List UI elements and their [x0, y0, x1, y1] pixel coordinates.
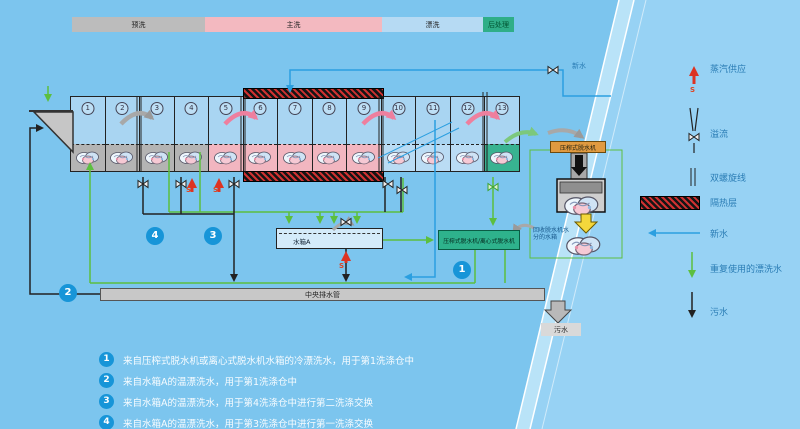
compartment-3: 3 [140, 97, 175, 171]
steam-s-label: S [213, 186, 218, 194]
legend-overflow: 溢流 [710, 127, 728, 140]
compartment-number: 12 [461, 102, 474, 115]
annotation-row-2: 2 来自水箱A的温漂洗水，用于第1洗涤仓中 [99, 373, 297, 388]
valve-icon [383, 181, 393, 188]
compartment-2: 2 [106, 97, 141, 171]
laundry-icon [145, 150, 169, 166]
compartment-drum [347, 144, 381, 171]
phase-prewash: 预洗 [72, 17, 205, 32]
compartment-drum [416, 144, 450, 171]
annotation-row-3: 3 来自水箱A的温漂洗水，用于第4洗涤仓中进行第二洗涤交换 [99, 394, 373, 409]
compartment-number: 8 [323, 102, 336, 115]
dehydrator-box-label: 压榨式脱水机/离心式脱水机 [443, 236, 515, 245]
laundry-icon [214, 150, 238, 166]
water-level-line [279, 233, 380, 234]
annotation-text: 来自水箱A的温漂洗水，用于第1洗涤仓中 [123, 374, 297, 388]
diagram-badge-3: 3 [204, 227, 222, 245]
compartment-number: 10 [392, 102, 405, 115]
laundry-icon [248, 150, 272, 166]
compartment-number: 4 [185, 102, 198, 115]
legend-steam-supply: 蒸汽供应 [710, 62, 746, 75]
compartment-number: 1 [81, 102, 94, 115]
compartment-8: 8 [313, 97, 348, 171]
compartment-drum [382, 144, 416, 171]
insulation-layer-bottom [243, 171, 384, 182]
compartment-10: 10 [382, 97, 417, 171]
phase-aftertreatment: 后处理 [483, 17, 514, 32]
recovery-note: 回收脱水机水分的水箱 [533, 228, 573, 242]
compartment-number: 3 [150, 102, 163, 115]
laundry-icon [421, 150, 445, 166]
legend-insulation: 隔热层 [710, 196, 737, 209]
compartment-11: 11 [416, 97, 451, 171]
compartment-drum [278, 144, 312, 171]
annotation-badge: 4 [99, 415, 114, 429]
phase-rinse: 漂洗 [382, 17, 483, 32]
compartment-drum [485, 144, 519, 171]
press-dehydrator-text: 压榨式脱水机 [560, 143, 596, 152]
compartment-6: 6 [244, 97, 279, 171]
compartment-drum [106, 144, 140, 171]
compartment-9: 9 [347, 97, 382, 171]
compartment-drum [313, 144, 347, 171]
steam-s-label: S [339, 262, 344, 270]
phase-label: 预洗 [132, 20, 146, 30]
steam-s-label: S [186, 186, 191, 194]
diagram-badge-1: 1 [453, 261, 471, 279]
diagram-badge-4: 4 [146, 227, 164, 245]
insulation-legend-swatch [640, 196, 700, 210]
dehydrator-box: 压榨式脱水机/离心式脱水机 [438, 230, 520, 250]
loading-funnel [29, 111, 73, 152]
compartment-drum [244, 144, 278, 171]
laundry-icon [110, 150, 134, 166]
phase-label: 漂洗 [426, 20, 440, 30]
compartment-12: 12 [451, 97, 486, 171]
process-diagram: 预洗 主洗 漂洗 后处理 1 2 3 4 5 6 7 8 9 10 11 12 … [0, 0, 800, 429]
sewage-label: 污水 [554, 325, 568, 335]
laundry-icon [387, 150, 411, 166]
annotation-badge: 1 [99, 352, 114, 367]
compartment-drum [71, 144, 105, 171]
green-valve-icon [488, 184, 498, 191]
overflow-legend-valve-icon [689, 134, 699, 141]
annotation-text: 来自压榨式脱水机或离心式脱水机水箱的冷漂洗水，用于第1洗涤仓中 [123, 353, 414, 367]
overflow-valve-icon [341, 219, 351, 226]
valve-icon [138, 181, 148, 188]
laundry-icon [456, 150, 480, 166]
sewage-arrow [545, 301, 571, 323]
compartment-number: 9 [358, 102, 371, 115]
legend-double-spiral: 双螺旋线 [710, 171, 746, 184]
sewage-label-chip: 污水 [541, 323, 581, 336]
laundry-icon [317, 150, 341, 166]
steam-s-label: S [690, 86, 695, 94]
compartment-7: 7 [278, 97, 313, 171]
press-feed-arrow [571, 155, 587, 176]
phase-label: 后处理 [488, 20, 509, 30]
phase-mainwash: 主洗 [205, 17, 382, 32]
annotation-row-1: 1 来自压榨式脱水机或离心式脱水机水箱的冷漂洗水，用于第1洗涤仓中 [99, 352, 414, 367]
valve-icon [229, 181, 239, 188]
compartment-drum [209, 144, 243, 171]
compartment-drum [140, 144, 174, 171]
laundry-icon [179, 150, 203, 166]
compartment-5: 5 [209, 97, 244, 171]
compartment-drum [451, 144, 485, 171]
diagram-badge-2: 2 [59, 284, 77, 302]
laundry-icon [283, 150, 307, 166]
compartment-number: 13 [496, 102, 509, 115]
annotation-text: 来自水箱A的温漂洗水，用于第3洗涤仓中进行第一洗涤交换 [123, 416, 373, 429]
insulation-layer-top [243, 88, 384, 99]
compartment-drum [175, 144, 209, 171]
compartment-4: 4 [175, 97, 210, 171]
central-drain-pipe: 中央排水管 [100, 288, 545, 301]
annotation-badge: 3 [99, 394, 114, 409]
compartment-1: 1 [71, 97, 106, 171]
compartment-number: 6 [254, 102, 267, 115]
legend-sewage: 污水 [710, 305, 728, 318]
annotation-row-4: 4 来自水箱A的温漂洗水，用于第3洗涤仓中进行第一洗涤交换 [99, 415, 373, 429]
press-output-arrow [575, 214, 597, 233]
laundry-icon [76, 150, 100, 166]
legend-reused-rinse-water: 重复使用的漂洗水 [710, 262, 782, 275]
laundry-icon [490, 150, 514, 166]
press-zone-outline [530, 150, 622, 258]
phase-label: 主洗 [287, 20, 301, 30]
valve-icon [397, 187, 407, 194]
press-dehydrator-label: 压榨式脱水机 [550, 141, 606, 153]
annotation-text: 来自水箱A的温漂洗水，用于第4洗涤仓中进行第二洗涤交换 [123, 395, 373, 409]
annotation-badge: 2 [99, 373, 114, 388]
compartment-number: 11 [427, 102, 440, 115]
compartment-number: 5 [219, 102, 232, 115]
compartment-number: 2 [116, 102, 129, 115]
compartment-13: 13 [485, 97, 519, 171]
overflow-legend-icon [690, 108, 698, 153]
water-tank-a: 水箱A [276, 228, 383, 249]
laundry-icon [352, 150, 376, 166]
tunnel-washer: 1 2 3 4 5 6 7 8 9 10 11 12 13 [70, 96, 520, 172]
compartment-number: 7 [288, 102, 301, 115]
tank-a-label: 水箱A [293, 236, 310, 246]
phase-bar: 预洗 主洗 漂洗 后处理 [72, 17, 514, 32]
double-spiral-legend-icon [691, 168, 695, 186]
legend-fresh-water: 新水 [710, 227, 728, 240]
fresh-water-top-label: 新水 [572, 61, 586, 71]
central-drain-pipe-label: 中央排水管 [305, 290, 340, 300]
valve-icon [176, 181, 186, 188]
valve-icon [548, 67, 558, 74]
